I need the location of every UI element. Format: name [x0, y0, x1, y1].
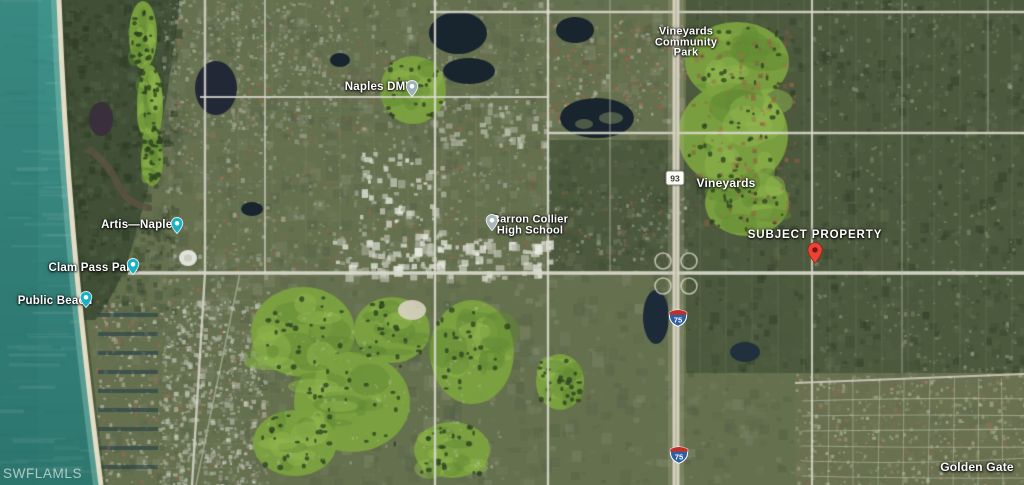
poi-label-artis-naples[interactable]: Artis—Naples — [101, 219, 179, 231]
poi-label-line: Park — [655, 47, 717, 58]
svg-text:75: 75 — [675, 453, 684, 462]
poi-label-line: High School — [492, 225, 568, 236]
satellite-imagery[interactable] — [0, 0, 1024, 485]
location-pin-icon[interactable] — [807, 242, 823, 264]
attraction-pin-icon[interactable] — [80, 291, 93, 308]
poi-label-line: Vineyards — [655, 26, 717, 37]
attraction-pin-icon[interactable] — [127, 258, 140, 275]
satellite-map-view[interactable]: Naples DMV Vineyards Community Park Arti… — [0, 0, 1024, 485]
place-label-golden-gate[interactable]: Golden Gate — [940, 460, 1014, 474]
poi-label-line: Barron Collier — [492, 215, 568, 226]
state-road-93-shield-icon: 93 — [666, 171, 685, 186]
place-label-vineyards[interactable]: Vineyards — [697, 176, 756, 190]
attraction-pin-icon[interactable] — [171, 217, 184, 234]
poi-label-naples-dmv[interactable]: Naples DMV — [345, 81, 413, 93]
watermark-attribution: SWFLAMLS — [3, 466, 82, 481]
svg-text:75: 75 — [674, 316, 683, 325]
poi-label-vineyards-community-park[interactable]: Vineyards Community Park — [655, 26, 717, 58]
subject-property-label: SUBJECT PROPERTY — [748, 229, 883, 241]
interstate-75-shield-icon: 75 — [669, 446, 689, 464]
interstate-75-shield-icon: 75 — [668, 309, 688, 327]
poi-label-barron-collier-high-school[interactable]: Barron Collier High School — [492, 215, 568, 236]
government-pin-icon[interactable] — [406, 80, 419, 97]
poi-label-clam-pass-park[interactable]: Clam Pass Park — [48, 262, 137, 274]
school-pin-icon[interactable] — [486, 214, 499, 231]
